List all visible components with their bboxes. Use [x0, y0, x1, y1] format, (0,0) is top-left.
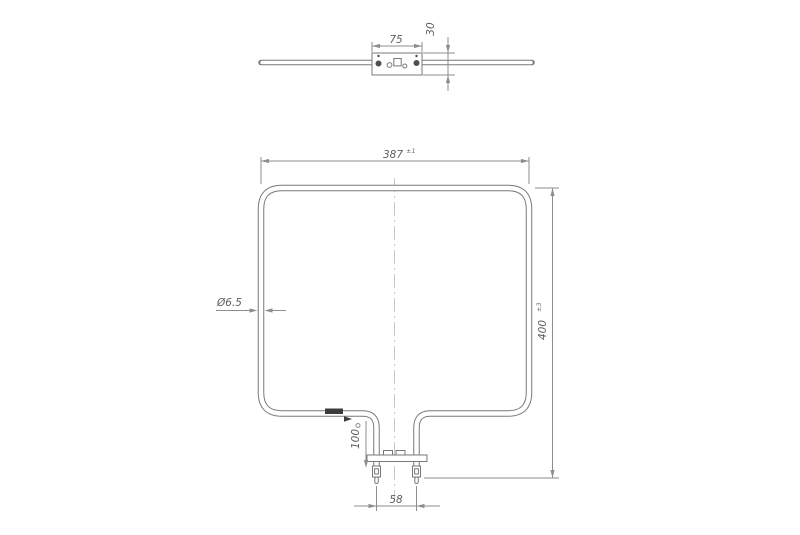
terminal-right: [413, 466, 421, 484]
bracket-rivet-right: [414, 60, 420, 66]
technical-drawing: 75 30: [0, 0, 800, 535]
dim-tube-diameter-label: Ø6.5: [216, 297, 242, 309]
bracket-pin-right: [415, 55, 417, 57]
bracket-pin-left: [377, 55, 379, 57]
bracket-square-hole: [394, 59, 401, 66]
dim-overall-width-label: 387: [383, 149, 403, 161]
bend-reference-mark: [356, 424, 360, 428]
dimension-bracket-width: 75: [372, 34, 422, 52]
bracket-rivet-left: [376, 61, 382, 67]
dim-overall-height-tolerance: ±3: [535, 302, 543, 312]
top-view: 75 30: [261, 22, 532, 91]
marking-arrow: [344, 416, 352, 421]
terminal-left-crimp-detail: [375, 469, 379, 474]
terminal-left: [373, 466, 381, 484]
dim-terminal-pitch-label: 58: [389, 494, 403, 506]
terminal-left-pin: [375, 477, 379, 484]
dimension-overall-height: 400 ±3: [424, 188, 559, 478]
dim-bracket-height-label: 30: [425, 22, 437, 36]
element-tube-loop: [261, 188, 529, 466]
dimension-tube-diameter: Ø6.5: [216, 297, 286, 313]
dimension-overall-width: 387 ±1: [261, 147, 529, 184]
dim-overall-height-label: 400: [537, 320, 549, 340]
dim-bracket-width-label: 75: [389, 34, 403, 46]
front-view: 387 ±1 400 ±3 Ø6.5 100: [216, 147, 559, 511]
dimension-terminal-pitch: 58: [354, 486, 440, 511]
dim-leg-length-label: 100: [350, 429, 362, 449]
bracket-hole-right: [403, 64, 407, 68]
tube-marking-band: [325, 409, 343, 415]
terminal-right-pin: [415, 477, 419, 484]
dim-overall-width-tolerance: ±1: [406, 147, 416, 155]
dimension-bracket-height: 30: [423, 22, 455, 91]
terminal-right-crimp-detail: [415, 469, 419, 474]
drawing-canvas: 75 30: [0, 0, 800, 535]
bracket-hole-left: [387, 63, 392, 68]
dimension-leg-length: 100: [350, 421, 368, 468]
